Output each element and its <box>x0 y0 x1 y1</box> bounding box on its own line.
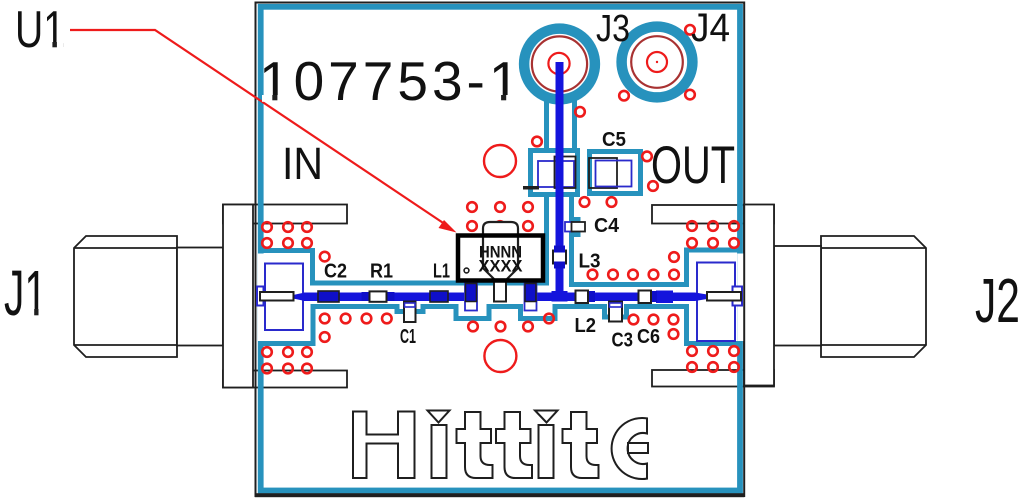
svg-text:IN: IN <box>282 138 323 189</box>
svg-text:J4: J4 <box>691 6 730 50</box>
svg-text:R1: R1 <box>370 261 393 283</box>
svg-text:J1: J1 <box>4 257 47 329</box>
svg-text:107753-1: 107753-1 <box>259 50 523 112</box>
svg-text:J2: J2 <box>975 267 1020 336</box>
svg-text:C6: C6 <box>637 326 660 348</box>
svg-text:C1: C1 <box>400 326 416 348</box>
svg-text:J3: J3 <box>596 8 630 50</box>
svg-text:C3: C3 <box>612 330 634 352</box>
svg-text:XXXX: XXXX <box>479 257 524 276</box>
svg-text:C2: C2 <box>324 261 347 283</box>
svg-text:U1: U1 <box>15 1 65 59</box>
svg-text:L2: L2 <box>575 315 597 337</box>
svg-text:OUT: OUT <box>651 136 735 195</box>
svg-text:L1: L1 <box>433 261 450 283</box>
svg-text:C4: C4 <box>594 215 620 237</box>
svg-text:L3: L3 <box>579 251 601 273</box>
svg-text:C5: C5 <box>602 129 626 151</box>
